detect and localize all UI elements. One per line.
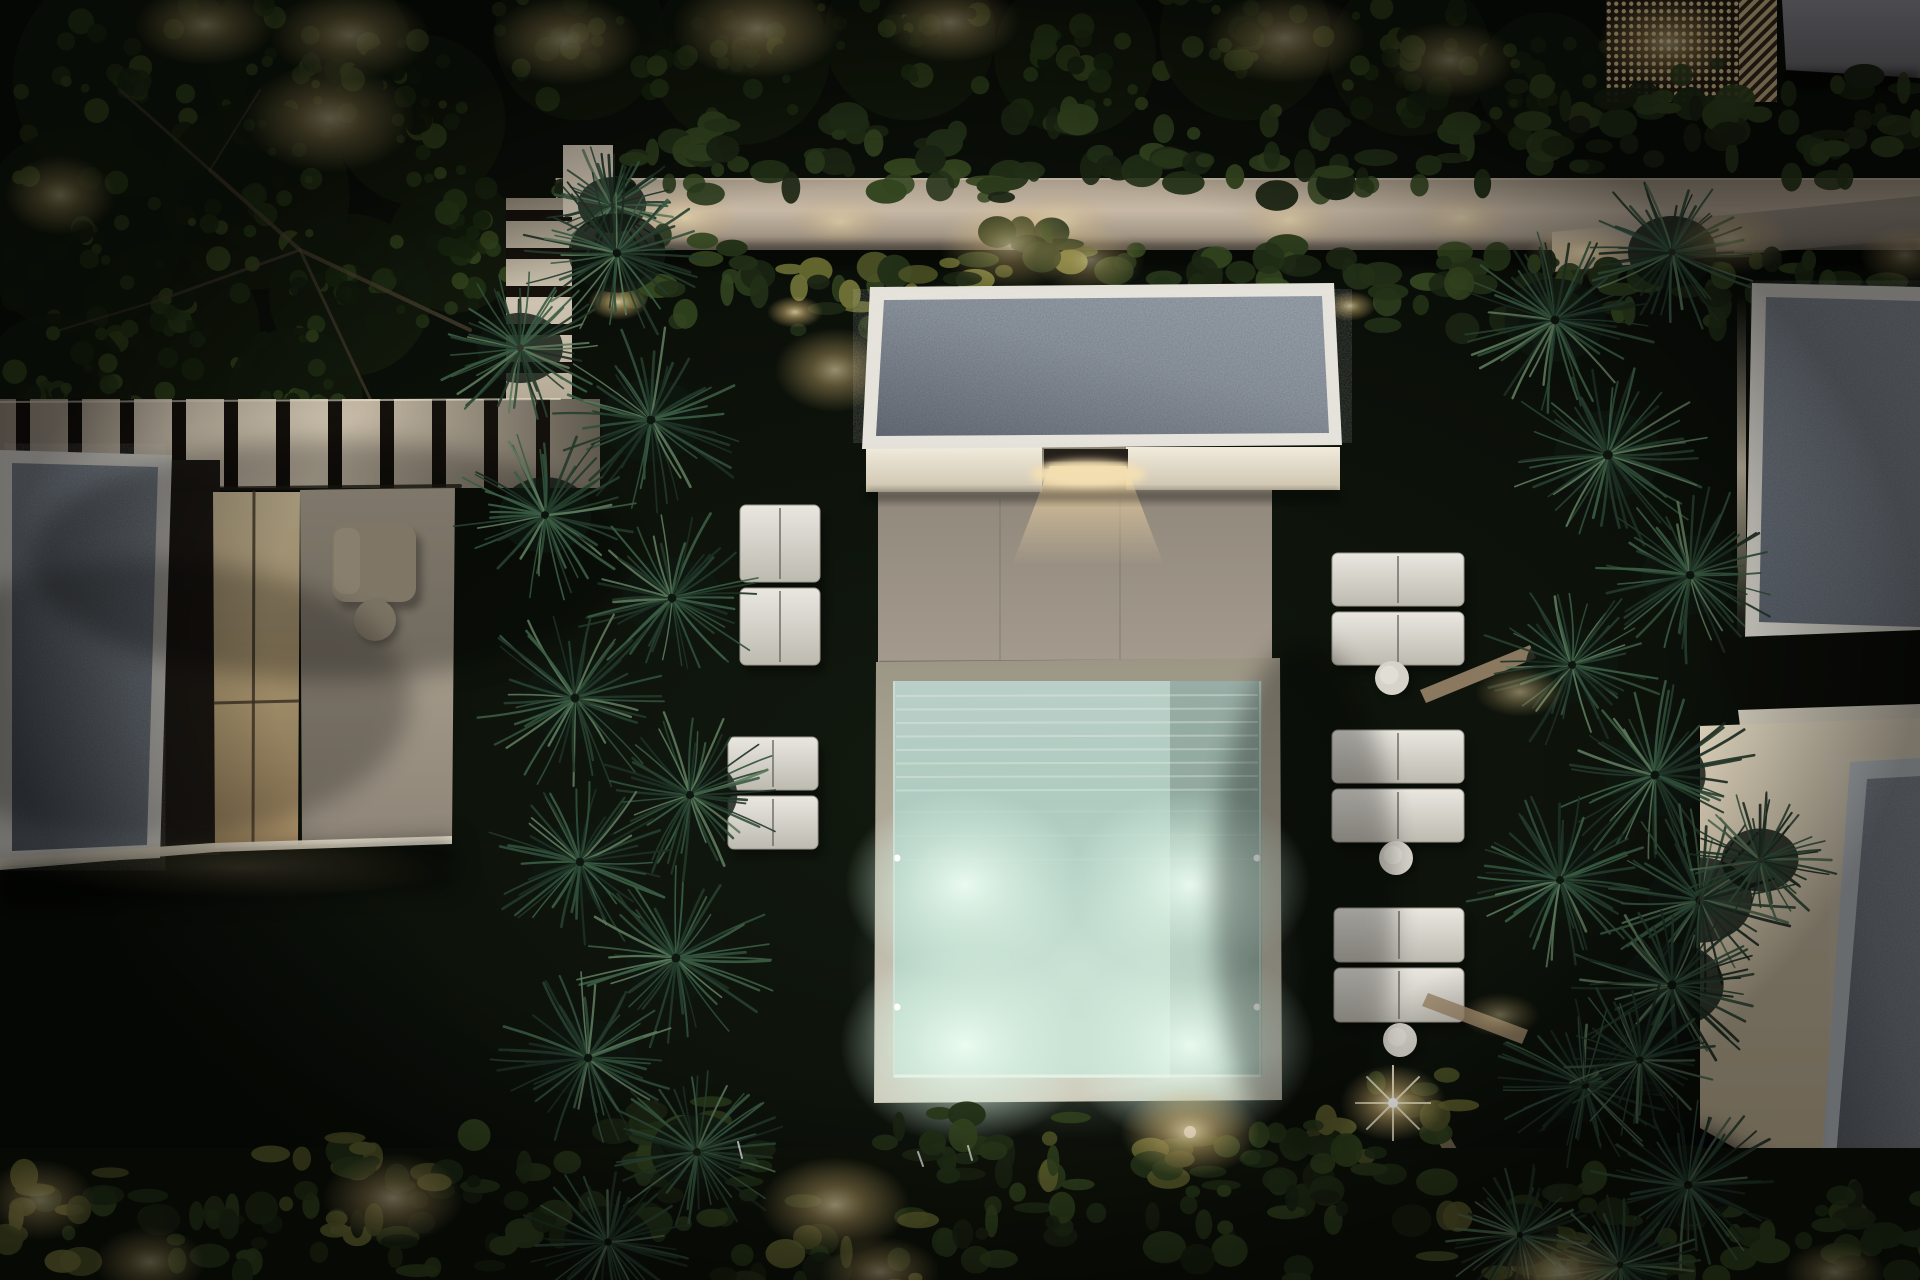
render-layers: [0, 0, 1920, 1280]
vignette: [0, 0, 1920, 1280]
scene-canvas: [0, 0, 1920, 1280]
aerial-villa-garden-photo: [0, 0, 1920, 1280]
